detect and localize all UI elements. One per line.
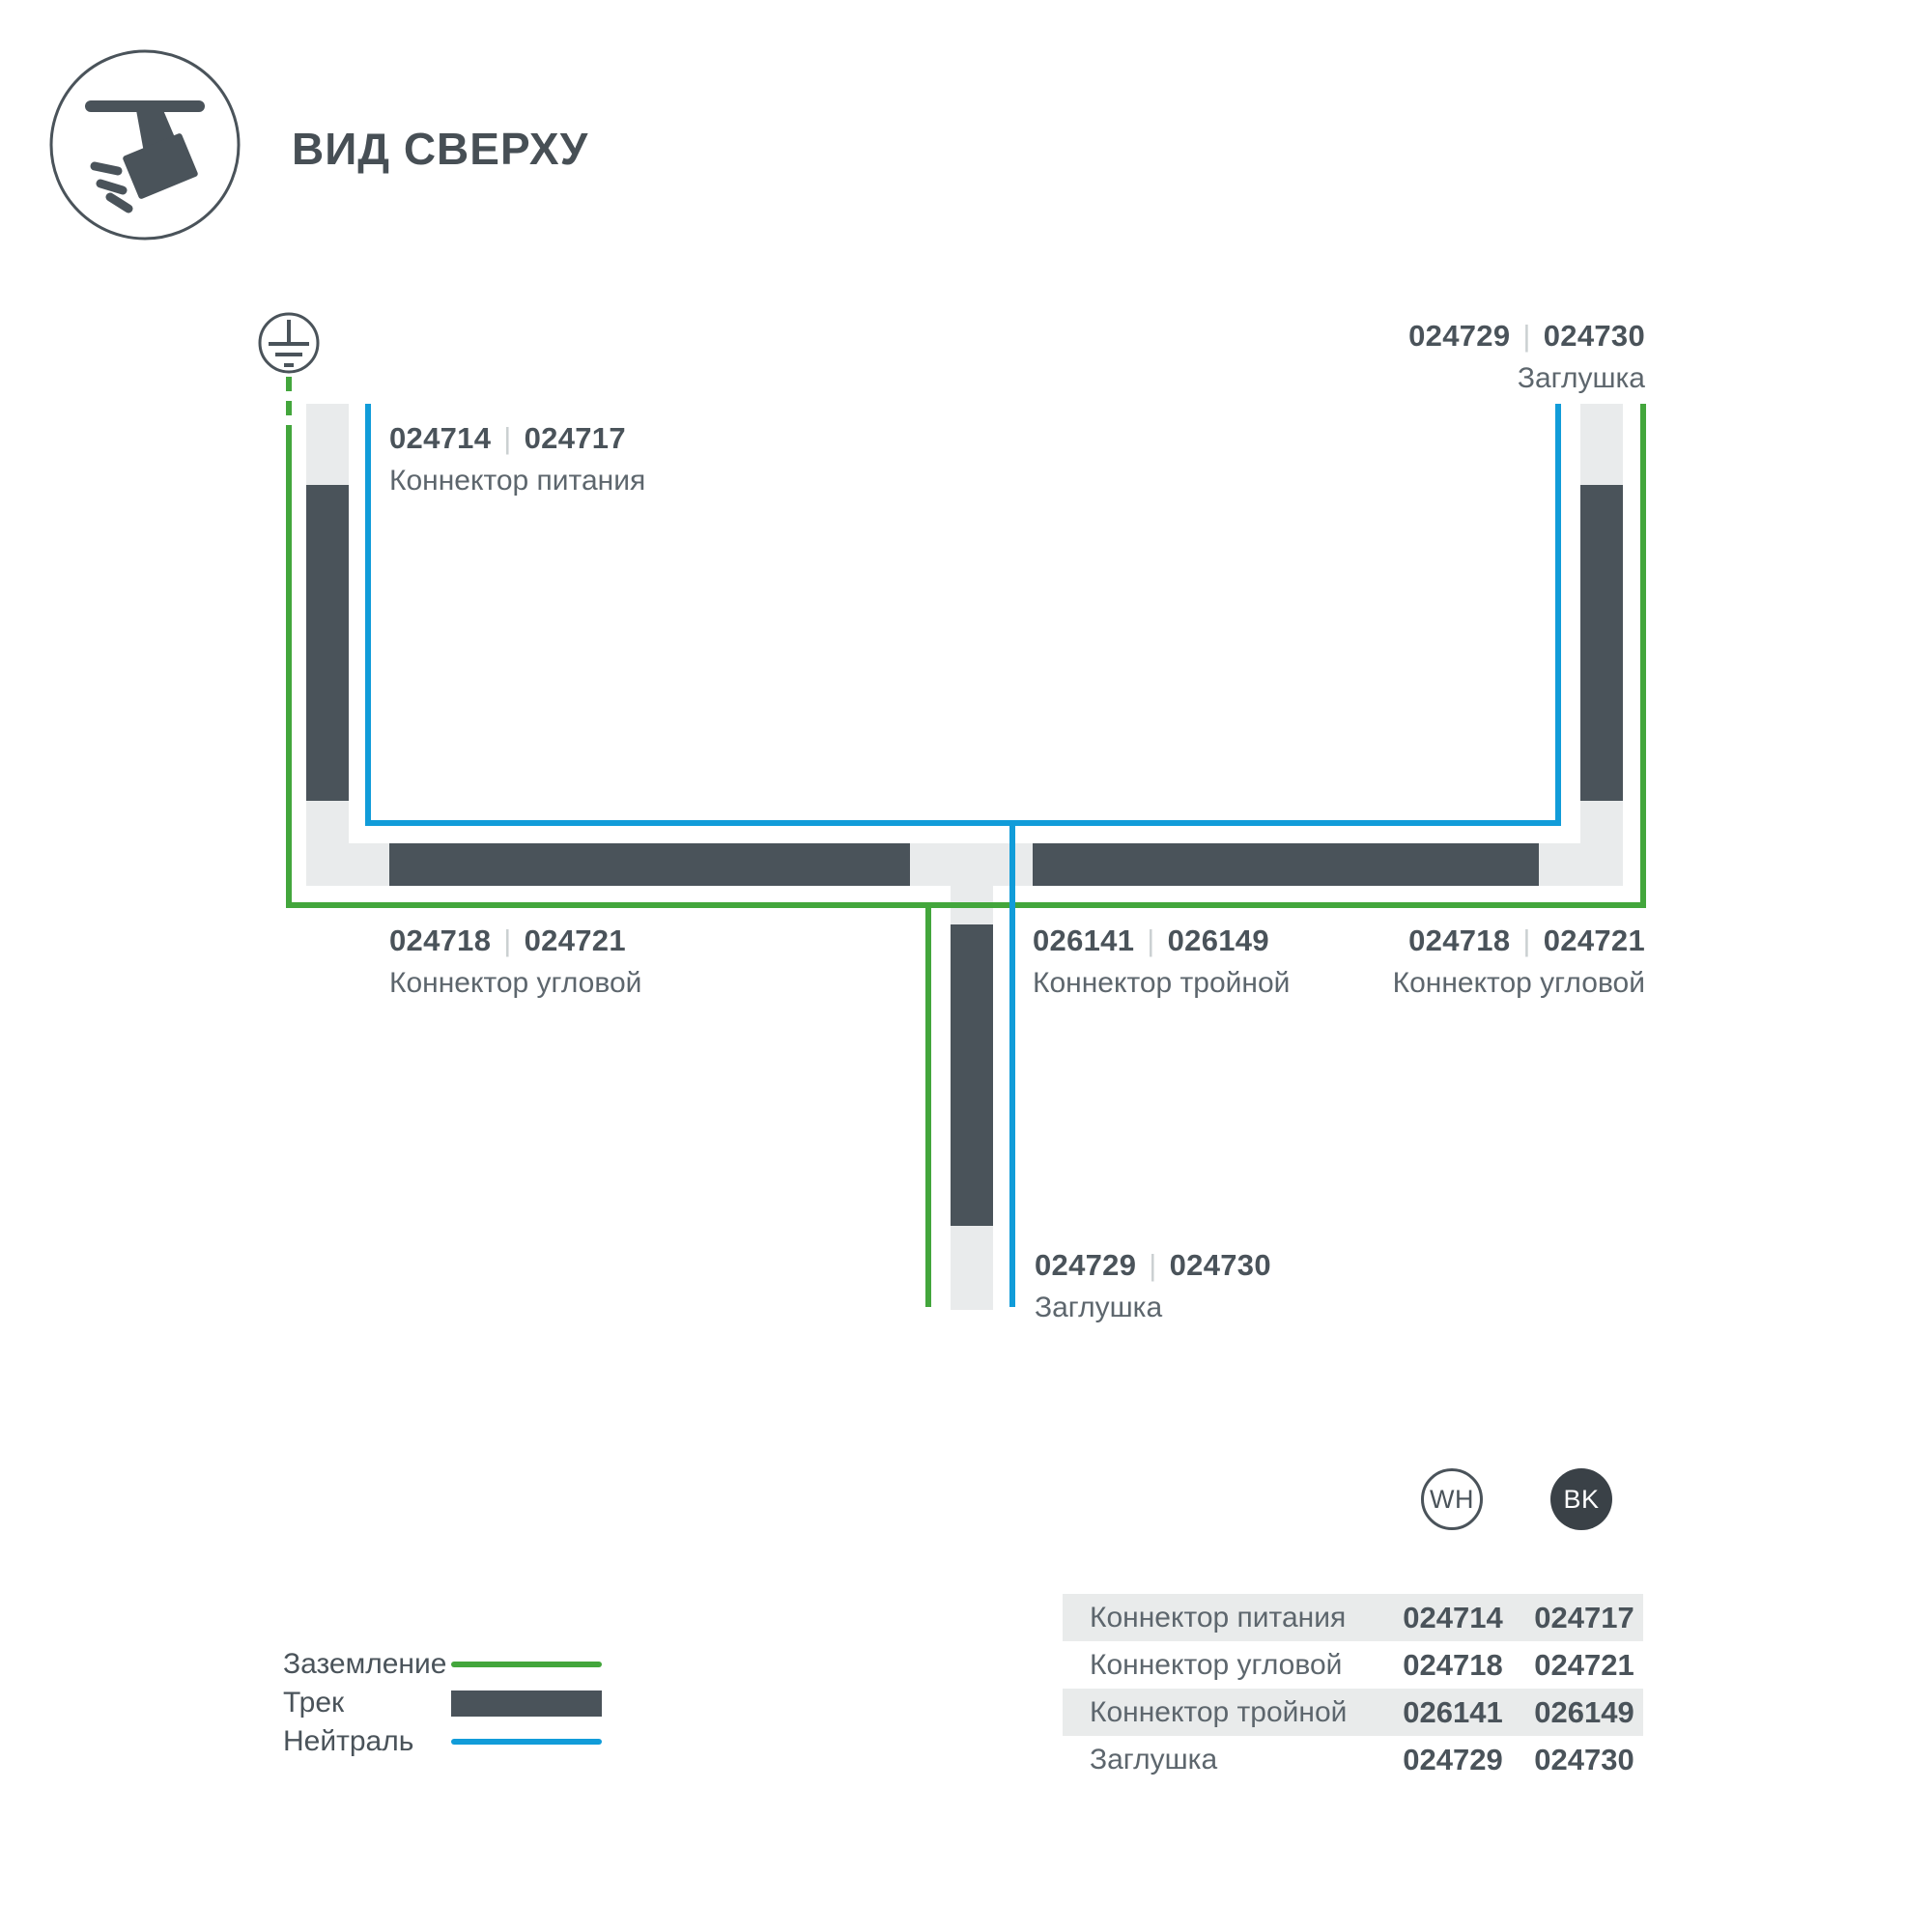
label-power-connector: 024714|024717 Коннектор питания [389, 421, 645, 497]
code-separator: | [1522, 923, 1530, 957]
variant-badge-black: BK [1550, 1468, 1612, 1530]
ground-symbol [269, 320, 309, 365]
page: ВИД СВЕРХУ 024714|024717 Коннектор питан… [0, 0, 1932, 1932]
label-codes: 026141|026149 [1033, 923, 1290, 958]
track-left [306, 485, 349, 801]
label-name: Коннектор угловой [1393, 967, 1645, 1000]
label-codes: 024729|024730 [1408, 319, 1645, 354]
part-name: Коннектор тройной [1090, 1696, 1347, 1729]
label-endcap-top: 024729|024730 Заглушка [1408, 319, 1645, 395]
label-name: Заглушка [1408, 362, 1645, 395]
code-wh: 024718 [1408, 923, 1510, 957]
label-name: Коннектор угловой [389, 967, 641, 1000]
code-separator: | [1522, 319, 1530, 353]
earth-ground-icon [260, 314, 318, 372]
legend-label: Заземление [283, 1648, 451, 1681]
parts-table: Коннектор питания 024714 024717 Коннекто… [1063, 1594, 1643, 1783]
code-separator: | [1147, 923, 1154, 957]
part-code-wh: 024729 [1395, 1743, 1511, 1777]
part-code-bk: 024730 [1526, 1743, 1642, 1777]
code-bk: 026149 [1168, 923, 1269, 957]
label-triple-connector: 026141|026149 Коннектор тройной [1033, 923, 1290, 1000]
code-wh: 026141 [1033, 923, 1134, 957]
legend-item-neutral: Нейтраль [283, 1722, 602, 1761]
legend-item-track: Трек [283, 1684, 602, 1722]
part-name: Коннектор угловой [1090, 1649, 1342, 1682]
code-bk: 024717 [525, 421, 626, 455]
code-bk: 024730 [1170, 1248, 1271, 1282]
part-code-wh: 024718 [1395, 1648, 1511, 1683]
code-wh: 024718 [389, 923, 491, 957]
page-title: ВИД СВЕРХУ [292, 123, 588, 175]
track-bottom-right [1033, 843, 1539, 886]
label-name: Заглушка [1035, 1292, 1271, 1324]
part-name: Коннектор питания [1090, 1602, 1346, 1634]
variant-badge-white: WH [1421, 1468, 1483, 1530]
track-bottom-left [389, 843, 910, 886]
track-right [1580, 485, 1623, 801]
code-wh: 024729 [1035, 1248, 1136, 1282]
track-stem [951, 924, 993, 1226]
part-code-bk: 024721 [1526, 1648, 1642, 1683]
code-bk: 024721 [1544, 923, 1645, 957]
legend-label: Трек [283, 1687, 451, 1719]
label-name: Коннектор питания [389, 465, 645, 497]
code-wh: 024714 [389, 421, 491, 455]
label-codes: 024714|024717 [389, 421, 645, 456]
label-corner-connector-right: 024718|024721 Коннектор угловой [1393, 923, 1645, 1000]
label-endcap-bottom: 024729|024730 Заглушка [1035, 1248, 1271, 1324]
track-spotlight-icon [51, 51, 239, 239]
track-bar-swatch [451, 1690, 602, 1717]
part-code-wh: 026141 [1395, 1695, 1511, 1730]
code-separator: | [503, 421, 511, 455]
label-corner-connector-left: 024718|024721 Коннектор угловой [389, 923, 641, 1000]
table-row: Заглушка 024729 024730 [1063, 1736, 1643, 1783]
light-rays-icon [95, 166, 128, 209]
label-codes: 024718|024721 [1393, 923, 1645, 958]
table-row: Коннектор тройной 026141 026149 [1063, 1689, 1643, 1736]
part-code-wh: 024714 [1395, 1601, 1511, 1635]
label-codes: 024718|024721 [389, 923, 641, 958]
code-separator: | [1149, 1248, 1156, 1282]
legend: Заземление Трек Нейтраль [283, 1645, 602, 1761]
blue-line-swatch [451, 1739, 602, 1745]
label-name: Коннектор тройной [1033, 967, 1290, 1000]
code-wh: 024729 [1408, 319, 1510, 353]
label-codes: 024729|024730 [1035, 1248, 1271, 1283]
part-code-bk: 026149 [1526, 1695, 1642, 1730]
table-row: Коннектор питания 024714 024717 [1063, 1594, 1643, 1641]
code-bk: 024721 [525, 923, 626, 957]
table-row: Коннектор угловой 024718 024721 [1063, 1641, 1643, 1689]
code-bk: 024730 [1544, 319, 1645, 353]
legend-label: Нейтраль [283, 1725, 451, 1758]
part-code-bk: 024717 [1526, 1601, 1642, 1635]
code-separator: | [503, 923, 511, 957]
part-name: Заглушка [1090, 1744, 1217, 1776]
legend-item-ground: Заземление [283, 1645, 602, 1684]
green-line-swatch [451, 1662, 602, 1667]
